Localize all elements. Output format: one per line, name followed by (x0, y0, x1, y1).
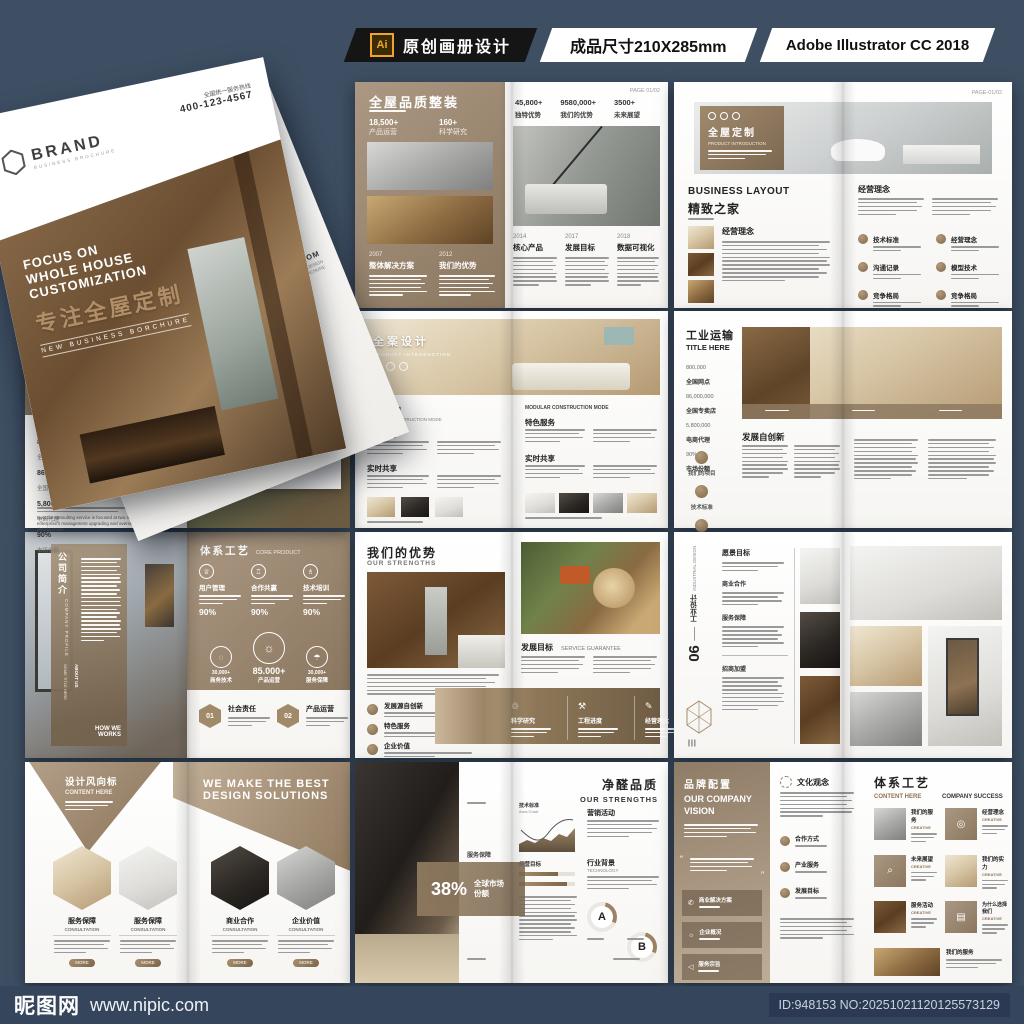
s2-thumb-3 (688, 280, 714, 303)
s8-section-1: 愿景目标 (722, 548, 788, 558)
s7-photo-chainsaw (521, 542, 660, 634)
site-logo: 昵图网 (14, 990, 80, 1020)
s5-stat1-v: 800,000 (686, 365, 716, 371)
s11-cell-1-label: 我们的服务 (911, 808, 937, 824)
s4-rthumb (559, 493, 589, 513)
s6-hex-1-lines (228, 717, 270, 726)
s9-hex-4-lines (278, 940, 334, 953)
s8-section-3: 服务保障 (722, 613, 788, 622)
s11-mid-item-icon (780, 888, 790, 898)
s11-cell-1-sub: CREATIVE (911, 825, 937, 830)
s9-hex-3-sub: CONSULTATION (211, 927, 269, 936)
s8-doorway-mirror (946, 638, 980, 716)
s7-right-heading: 发展目标 (521, 642, 553, 653)
s7-photo-kitchen (367, 572, 505, 668)
s11-left-title: 品牌配置 (684, 776, 732, 791)
s11-left-en-1: OUR COMPANY (684, 794, 752, 804)
s6-right-title: 体系工艺 (200, 543, 250, 558)
s9-more-button-3[interactable]: MORE (227, 959, 253, 967)
s1-year2: 2012 (439, 252, 499, 258)
s10-pct-band: 38% 全球市场份额 (417, 862, 525, 916)
s11-cell-6-sub: CREATIVE (982, 916, 1008, 921)
s8-column-divider (794, 548, 795, 744)
s5-lines-1 (742, 445, 788, 480)
s2-item-icon (858, 290, 868, 300)
chat-icon: ✆ (688, 899, 694, 907)
s6-circle2-l: 产品运营 (244, 676, 294, 684)
s4-rsec2-lines-a (525, 465, 585, 481)
s5-circle-icon (695, 519, 708, 532)
s10-sec3-sub: TECHNOLOGY (587, 868, 619, 873)
s9-hex-3-lines (212, 940, 268, 953)
s11-cell-6-label: 为什么选择我们 (982, 901, 1008, 915)
s9-hex-2-lines (120, 940, 176, 953)
s6-col3-pct: 90% (303, 607, 347, 617)
s7-band-1: 科学研究 (511, 716, 553, 725)
s11-mid-item-1: 合作方式 (795, 834, 851, 843)
s9-hex-1-lines (54, 940, 110, 953)
s10-sec1: 营销活动 (587, 808, 615, 818)
s9-hex-2-sub: CONSULTATION (119, 927, 177, 936)
nipic-template-preview: { "header":{"ai_badge":"Ai","title":"原创画… (0, 0, 1024, 1024)
s11-box-2-lines (699, 938, 735, 940)
s11-cell-2-sub: CREATIVE (982, 817, 1008, 822)
s10-ring-a: A (587, 902, 617, 932)
s4-rthumb (593, 493, 623, 513)
s3-stat4-l: 市场份额 (37, 548, 59, 554)
s6-hex-2-lines (306, 717, 348, 726)
s5-title: 工业运输 (686, 327, 734, 343)
s7-photo-counter (458, 635, 505, 668)
s7-band-photo (435, 688, 505, 744)
s1-photo-livingroom (513, 126, 660, 226)
s7-item-icon (367, 704, 378, 715)
s1-rstat3-label: 未来展望 (614, 109, 640, 119)
s6-circle2-v: 85.000+ (244, 666, 294, 676)
s2-overlay-card: 全屋定制 PRODUCT INTRODUCTION (700, 106, 784, 170)
s4-overlay-sub: PRODUCT INTRODUCTION (373, 352, 451, 357)
s2-item-icon (858, 262, 868, 272)
s11-cell-1-lines (911, 833, 937, 842)
s7-item-icon (367, 744, 378, 755)
s6-drop-icon: ◌ (210, 646, 232, 668)
megaphone-icon: ◁ (688, 963, 693, 971)
s6-bell-icon: ♗ (303, 564, 318, 579)
s2-left-lines (722, 241, 830, 281)
spread-quality-package: 全屋品质整装 18,500+产品运营 160+科学研究 2007 整体解决方案 … (355, 82, 668, 308)
s2-item-6-lines (951, 302, 999, 307)
s1-ryear1-title: 核心产品 (513, 242, 561, 253)
s10-title: 净醛品质 (580, 776, 658, 793)
s2-thumb-1 (688, 226, 714, 249)
s2-thumb-2 (688, 253, 714, 276)
s6-vertical-card: 公司简介 COMPANY PROFILE ABOUT US SOME TITLE… (51, 544, 127, 746)
header-title: 原创画册设计 (403, 33, 511, 57)
s5-lines-4 (928, 439, 996, 482)
s8-photo-dining (800, 612, 840, 668)
s11-mid-item-1-lines (795, 845, 851, 847)
s11-box-1-label: 商业解决方案 (699, 896, 735, 904)
s10-progress-2 (519, 882, 575, 886)
s6-hex-1-label: 社会责任 (228, 704, 270, 714)
tools-icon: ⚒ (578, 701, 586, 711)
s11-mid-item-2-lines (795, 871, 851, 873)
s11-cell-photo (874, 808, 906, 840)
s8-photo-doorway (928, 626, 1002, 746)
header-size: 成品尺寸210X285mm (570, 33, 727, 57)
header-size-plate: 成品尺寸210X285mm (540, 28, 757, 62)
s11-mid-item-icon (780, 836, 790, 846)
s6-col3-lines (303, 595, 345, 604)
spread-industrial-design: 06 工业设计 INDUSTRIAL DESIGN ||| 愿景目标 商业合作 … (674, 532, 1012, 758)
s11-cell-3-lines (911, 872, 937, 881)
s5-lines-3 (854, 439, 918, 482)
s5-circle-1: 我们的项目 (688, 469, 716, 477)
s1-ryear1-lines (513, 257, 557, 286)
s10-sec3-lines (587, 876, 659, 892)
spread-industry-transport: 工业运输 TITLE HERE 800,000全国网点 86,000,000全国… (674, 311, 1012, 528)
s10-pct-label: 全球市场份额 (474, 879, 508, 899)
s4-photo-painting (604, 327, 634, 345)
s8-divider (722, 655, 788, 656)
s1-page-number: PAGE 01/02 (630, 88, 660, 94)
s1-stat2-value: 160+ (439, 118, 467, 127)
s11-document-icon: ▤ (945, 901, 977, 933)
s10-area-chart (519, 814, 575, 852)
s6-hex-badge-1: 01 (199, 704, 221, 728)
s6-right-title-en: CORE PRODUCT (256, 550, 301, 556)
s6-col1-label: 用户管理 (199, 582, 243, 592)
s4-photo-bed (512, 363, 631, 390)
s2-item-5: 竞争格局 (873, 290, 921, 300)
s10-title-en: OUR STRENGTHS (580, 795, 658, 804)
s10-ring-a-label: A (587, 902, 617, 932)
s4-rthumb-captions (525, 517, 657, 521)
header-bar: Ai 原创画册设计 成品尺寸210X285mm Adobe Illustrato… (350, 28, 989, 62)
s4-overlay-title: 全案设计 (373, 333, 451, 349)
s11-cell-photo (874, 901, 906, 933)
s1-rstat2-label: 我们的优势 (560, 109, 596, 119)
s11-mid-item-2: 产业服务 (795, 860, 851, 869)
s8-section-1-lines (722, 562, 784, 571)
s10-side-label: 服务保障 (467, 850, 491, 859)
s10-photo-floor (355, 934, 459, 983)
s7-right-heading-en: SERVICE GUARANTEE (561, 646, 621, 652)
s5-photo-bedroom (742, 327, 1002, 419)
s8-photo-lounge (850, 626, 922, 686)
s5-circle-2: 技术标准 (688, 503, 716, 511)
s11-left-lines (684, 824, 758, 840)
s1-photo-kitchen (367, 142, 493, 190)
spread-our-strengths: 我们的优势 OUR STRENGTHS 发展源自创新 特色服务 企业价值 发展目… (355, 532, 668, 758)
s9-hex-photo-2 (119, 846, 177, 910)
s10-ring-b: B (627, 932, 657, 962)
s2-left-section: 经营理念 (722, 226, 832, 237)
site-url[interactable]: www.nipic.com (90, 995, 209, 1016)
s5-caption-lines (852, 410, 892, 414)
s6-about2: SOME TITLE HERE (63, 664, 68, 700)
s2-dot-icon (732, 112, 740, 120)
s10-ring-b-label: B (627, 932, 657, 962)
s9-hex-photo-3 (211, 846, 269, 910)
s7-item-icon (367, 724, 378, 735)
s4-right-top: MODULAR CONSTRUCTION MODE (525, 405, 609, 411)
s11-right-title: 体系工艺 (874, 774, 930, 791)
s4-dot-icon (386, 362, 395, 371)
s11-mid-heading: 文化观念 (797, 777, 829, 788)
s2-item-icon (936, 290, 946, 300)
spread-pure-quality: 服务保障 38% 全球市场份额 净醛品质 OUR STRENGTHS 技术标准 … (355, 762, 668, 983)
s2-page-number: PAGE-01/02 (972, 90, 1002, 96)
s11-box-1: ✆ 商业解决方案 (682, 890, 762, 916)
s6-col1-lines (199, 595, 241, 604)
s7-photo-door (425, 587, 447, 654)
s4-thumb (435, 497, 463, 517)
s5-lines-2 (794, 445, 840, 480)
s4-thumb-captions (367, 521, 463, 525)
s11-left-en-2: VISION (684, 806, 715, 816)
s11-right-sub-1: CONTENT HERE (874, 794, 921, 800)
s1-ryear2-lines (565, 257, 609, 286)
s11-cell-4-label: 我们的实力 (982, 855, 1008, 871)
s6-col1-pct: 90% (199, 607, 243, 617)
s5-photo-caption-bar (742, 404, 1002, 419)
s11-bottom-label: 我们的服务 (946, 948, 1006, 956)
s11-cell-4-sub: CREATIVE (982, 872, 1008, 877)
s10-left-column-lines (519, 896, 577, 943)
s11-bottom-lines (946, 959, 1002, 968)
s7-photo-log (593, 568, 635, 608)
s2-item-4-lines (951, 274, 999, 279)
s1-ryear3-title: 数据可视化 (617, 242, 663, 253)
s6-col2-label: 合作共赢 (251, 582, 295, 592)
s11-cell-2-lines (982, 825, 1008, 834)
s9-more-button-2[interactable]: MORE (135, 959, 161, 967)
header-title-plate: Ai 原创画册设计 (344, 28, 537, 62)
culture-icon (780, 776, 792, 788)
s8-side-cn: 工业设计 (690, 595, 700, 623)
s5-circle-icon (695, 451, 708, 464)
s5-stat2-v: 86,000,000 (686, 394, 716, 400)
s9-hex-4-sub: CONSULTATION (277, 927, 335, 936)
s2-overlay-lines (708, 150, 772, 159)
s11-mid-item-3-lines (795, 897, 851, 899)
s11-mid-lines-top (780, 792, 854, 819)
s1-rstat1-label: 独特优势 (515, 109, 542, 119)
s1-title: 全屋品质整装 (369, 92, 459, 111)
s6-card-lines (81, 558, 121, 644)
s9-left-sub: CONTENT HERE (65, 790, 118, 796)
s1-photo-sofa (525, 184, 607, 214)
s2-item-4: 模型技术 (951, 262, 999, 272)
s10-progress-1 (519, 872, 575, 876)
s6-how: HOW WE WORKS (81, 726, 121, 738)
s4-sec2-lines-b (437, 475, 501, 491)
s9-right-title-2: DESIGN SOLUTIONS (203, 790, 330, 802)
s4-thumb (401, 497, 429, 517)
s11-cell-3-label: 未来展望 (911, 855, 937, 863)
s4-rsec1: 特色服务 (525, 417, 555, 428)
s6-umbrella-icon: ☂ (306, 646, 328, 668)
cover-mockup: WWW.WEB.COM CREATIVE DESIGN BUSINESS BOR… (0, 36, 380, 536)
s2-item-3: 沟通记录 (873, 262, 921, 272)
header-software-plate: Adobe Illustrator CC 2018 (759, 28, 995, 62)
s2-right-lines-b (932, 198, 998, 217)
s11-box-3: ◁ 服务宗旨 (682, 954, 762, 980)
s9-right-title-1: WE MAKE THE BEST (203, 778, 330, 790)
s7-photo-saw-body (560, 566, 591, 584)
s1-ryear3: 2018 (617, 234, 663, 240)
s6-hex-1-num: 01 (206, 713, 214, 720)
cover-photo-table (79, 405, 224, 483)
s8-section-2-lines (722, 592, 784, 605)
s2-item-6: 竞争格局 (951, 290, 999, 300)
s6-col2-pct: 90% (251, 607, 295, 617)
s2-right-lines-a (858, 198, 924, 217)
s5-caption-lines (939, 410, 979, 414)
pencil-icon: ✎ (645, 701, 653, 711)
s9-more-button-1[interactable]: MORE (69, 959, 95, 967)
s1-year2-title: 我们的优势 (439, 260, 499, 271)
s2-item-icon (936, 262, 946, 272)
s7-band-2-lines (578, 728, 618, 737)
s8-photo-hallway (800, 548, 840, 604)
s8-photo-loft-large (850, 546, 1002, 620)
s8-section-3-lines (722, 626, 784, 647)
brand-hexagon-icon (0, 147, 28, 177)
s11-magnifier-icon: ⌕ (874, 855, 906, 887)
s11-box-2-label: 企业概况 (699, 928, 735, 936)
s7-band-1-lines (511, 728, 551, 737)
s9-hex-2-title: 服务保障 (119, 916, 177, 926)
s1-ryear2-title: 发展目标 (565, 242, 613, 253)
s1-ryear1: 2014 (513, 234, 561, 240)
s10-ring-a-caption (587, 938, 617, 942)
s10-pct: 38% (431, 879, 467, 900)
s7-right-lines-a (521, 656, 585, 675)
s6-vertical-cn: 公司简介 (56, 552, 69, 596)
image-id-badge: ID:948153 NO:20251021120125573129 (769, 993, 1011, 1017)
s8-section-4: 招商加盟 (722, 664, 788, 673)
s11-cell-4-lines (982, 880, 1008, 889)
s1-rstat3-value: 3500+ (614, 98, 640, 107)
s8-side-en: INDUSTRIAL DESIGN (692, 546, 697, 591)
s1-ryear3-lines (617, 257, 659, 286)
s2-item-3-lines (873, 274, 921, 279)
s10-chart-title: 技术标准 (519, 802, 539, 809)
s9-more-button-4[interactable]: MORE (293, 959, 319, 967)
s4-rsec1-lines-a (525, 429, 585, 445)
s1-rstat1-value: 45,800+ (515, 98, 542, 107)
s10-sec3: 行业背景 (587, 858, 615, 868)
s11-cell-6-lines (982, 924, 1008, 933)
bulb-icon: ☼ (688, 932, 694, 939)
cover-front: 全国统一服务热线 400-123-4567 BRAND BUSINESS BRO… (0, 57, 346, 511)
s4-rsec2: 实时共享 (525, 453, 555, 464)
s11-cell-3-sub: CREATIVE (911, 864, 937, 869)
ai-logo-icon: Ai (370, 33, 394, 57)
s11-cell-2-label: 经营理念 (982, 808, 1008, 816)
s11-box-1-lines (699, 906, 735, 908)
s4-rthumb (525, 493, 555, 513)
s5-section: 发展自创新 (742, 431, 785, 443)
s7-bottom-band: ♲ 科学研究 ⚒ 工程进度 ✎ 经营理念 (435, 688, 660, 744)
s11-box-3-label: 服务宗旨 (698, 960, 734, 968)
s7-right-lines-b (593, 656, 657, 675)
s8-photo-cabinet (800, 676, 840, 744)
s9-hex-1-sub: CONSULTATION (53, 927, 111, 936)
s8-tick-marks: ||| (688, 740, 697, 747)
s11-box-3-lines (698, 970, 734, 972)
s11-cell-5-label: 服务活动 (911, 901, 937, 909)
s6-circle3-l: 服务保障 (297, 676, 337, 684)
s10-sec1-lines (587, 820, 659, 839)
s6-vertical-en: COMPANY PROFILE (56, 599, 69, 657)
s7-title: 我们的优势 (367, 544, 437, 561)
s2-item-2-lines (951, 246, 999, 251)
s5-stat2-l: 全国专卖店 (686, 409, 716, 415)
s4-rthumb (627, 493, 657, 513)
s11-cell-5-sub: CREATIVE (911, 910, 937, 915)
s4-rsec1-lines-b (593, 429, 657, 445)
s6-bulb-icon: ☼ (253, 632, 285, 664)
s6-hex-2-label: 产品运营 (306, 704, 348, 714)
s1-photo-bedroom (367, 196, 493, 244)
spread-brand-vision: 品牌配置 OUR COMPANY VISION “ ” ✆ 商业解决方案 ☼ 企… (674, 762, 1012, 983)
s4-rsec2-lines-b (593, 465, 657, 481)
s2-item-1: 技术标准 (873, 234, 921, 244)
s5-stat3-v: 5,800,000 (686, 423, 716, 429)
s5-circle-icon (695, 485, 708, 498)
s4-dot-icon (399, 362, 408, 371)
s5-caption-lines (765, 410, 805, 414)
s6-partner-icon: ♖ (251, 564, 266, 579)
s7-band-2: 工程进度 (578, 716, 620, 725)
s1-year2-lines (439, 275, 495, 296)
s6-hex-badge-2: 02 (277, 704, 299, 728)
s11-cell-5-lines (911, 918, 937, 927)
s7-title-en: OUR STRENGTHS (367, 560, 436, 567)
s4-sec1-lines-b (437, 441, 501, 457)
s5-stat3-l: 电商代理 (686, 438, 710, 444)
s5-stat1-l: 全国网点 (686, 380, 710, 386)
s1-stat2-label: 科学研究 (439, 127, 467, 137)
s2-item-2: 经营理念 (951, 234, 999, 244)
s6-about1: ABOUT US (74, 664, 79, 700)
s9-hex-3-title: 商业合作 (211, 916, 269, 926)
s4-photo-bedroom: 全案设计 PRODUCT INTRODUCTION (363, 319, 660, 395)
spread-company-profile: 公司简介 COMPANY PROFILE ABOUT US SOME TITLE… (25, 532, 350, 758)
s9-hex-4-title: 企业价值 (277, 916, 335, 926)
s2-heading-en: BUSINESS LAYOUT (688, 186, 790, 197)
footer-bar: 昵图网 www.nipic.com ID:948153 NO:202510211… (0, 986, 1024, 1024)
s2-item-1-lines (873, 246, 921, 251)
s10-margin-line-top (467, 802, 499, 806)
spread-custom-home: PAGE-01/02 全屋定制 PRODUCT INTRODUCTION BUS… (674, 82, 1012, 308)
s11-photo-lobby (874, 948, 940, 976)
s11-box-2: ☼ 企业概况 (682, 922, 762, 948)
s2-item-icon (936, 234, 946, 244)
s10-margin-line-bottom (467, 958, 499, 962)
s11-mid-lines-bottom (780, 918, 854, 941)
s8-section-4-lines (722, 677, 784, 710)
s8-section-2: 商业合作 (722, 579, 788, 588)
s2-item-5-lines (873, 302, 921, 307)
s9-hex-photo-1 (53, 846, 111, 910)
s2-photo-bathtub (831, 139, 885, 161)
s6-col3-label: 技术培训 (303, 582, 347, 592)
s6-col2-lines (251, 595, 293, 604)
